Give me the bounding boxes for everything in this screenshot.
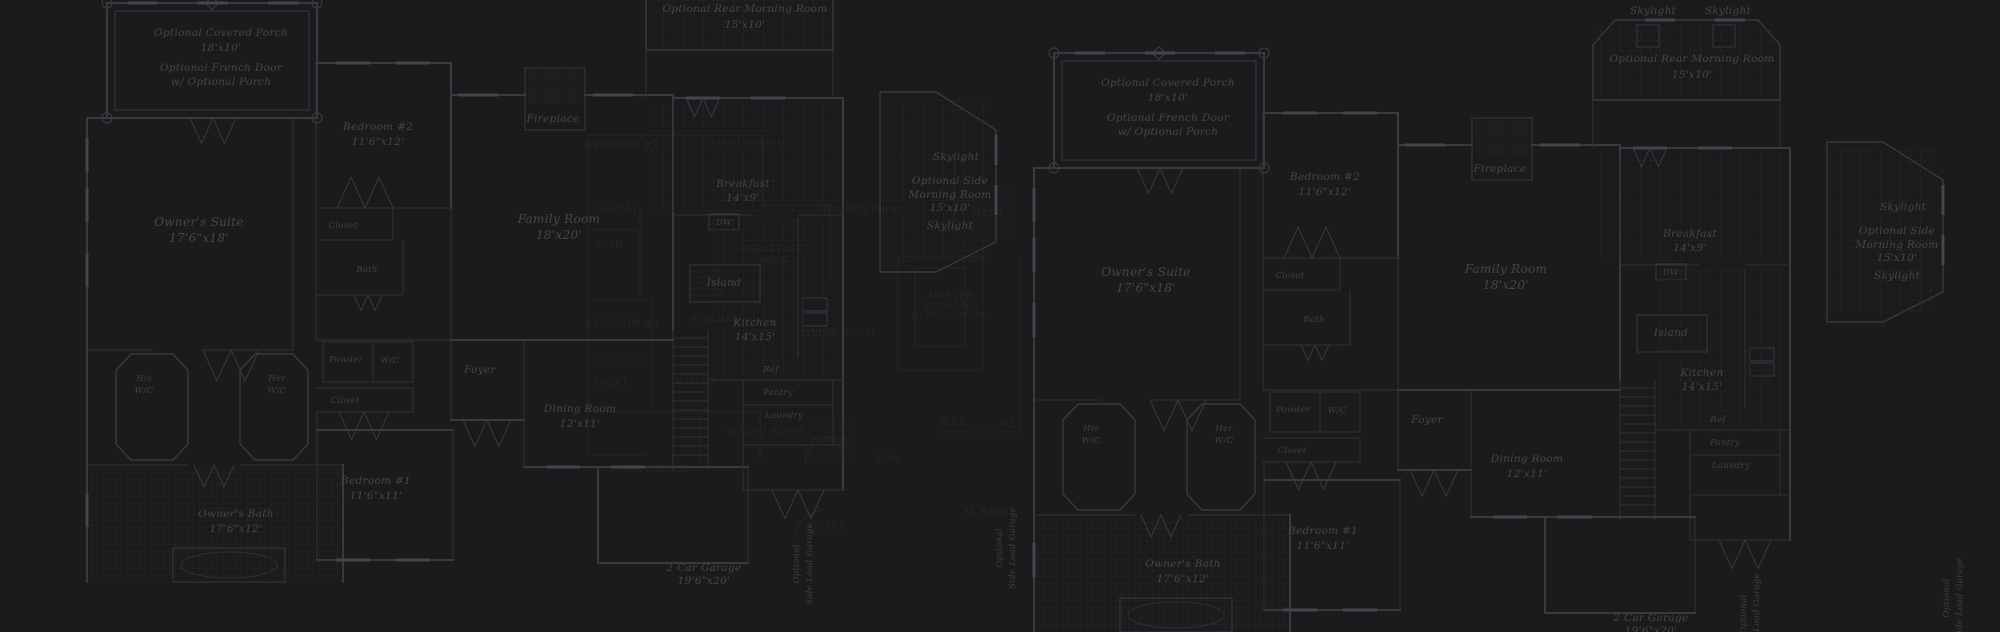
room-label: Morning Room [1854, 239, 1938, 251]
his-wc-outline [1063, 404, 1135, 510]
room-label: 2 Car Garage [1612, 612, 1688, 624]
room-label: 15'x10' [930, 202, 971, 214]
door-swing-icon [339, 412, 389, 440]
door-swing-icon [1286, 462, 1336, 490]
door-swing-icon [1137, 168, 1183, 193]
room-label: 18'x10' [201, 42, 242, 54]
room-label: Skylight [1630, 5, 1677, 17]
room-label: Skylight [1705, 5, 1752, 17]
room-label: Ref [762, 365, 780, 375]
porch-inner-outline [1062, 61, 1256, 160]
room-label: Optional Covered Porch [154, 27, 288, 39]
room-label: Bedroom #1 [1287, 525, 1358, 537]
room-label: DW [715, 218, 733, 228]
room-label: W/C [1214, 436, 1233, 446]
bg-room-label: W/ OPTIONAL BED [912, 311, 990, 319]
bg-room-label: DINING ROOM [726, 427, 803, 437]
room-label: Optional French Door [160, 62, 283, 74]
bg-room-label: DEN [876, 455, 899, 465]
room-label: 18'x20' [536, 228, 582, 242]
room-label: Her [1214, 424, 1233, 434]
room-label: Bedroom #1 [340, 475, 411, 487]
door-swing-icon [1150, 400, 1206, 431]
bg-room-label: BEDROOM #2 [585, 141, 658, 151]
porch-outline [1054, 53, 1264, 168]
room-label: Foyer [463, 364, 496, 376]
room-label: 12'x11' [560, 418, 601, 430]
fireplace-hatch [527, 70, 583, 104]
room-label-vertical: Side Load Garage [1955, 557, 1965, 632]
room-label: His [1082, 424, 1099, 434]
room-label: 17'6"x12' [1157, 573, 1210, 585]
room-label: Closet [331, 396, 360, 406]
kitchen-floor [711, 218, 841, 376]
room-label: Morning Room [907, 189, 991, 201]
foreground-floor-plans: SkylightSkylightOptional Rear Morning Ro… [87, 0, 1965, 632]
porch-inner-outline [115, 11, 309, 110]
bg-room-label: MASTER [929, 292, 974, 302]
room-label: Optional Side [1859, 225, 1935, 237]
room-label: 14'x9' [1673, 242, 1707, 254]
room-label: Skylight [927, 220, 974, 232]
room-label: 11'6"x11' [1297, 540, 1350, 552]
room-label-vertical: Side Load Garage [1008, 507, 1018, 589]
room-label: Optional Side [912, 175, 988, 187]
room-label: 18'x20' [1483, 278, 1529, 292]
room-label: Bath [1302, 315, 1324, 325]
room-label: Foyer [1410, 414, 1443, 426]
room-label: 12'x11' [1507, 468, 1548, 480]
room-label: Fireplace [1472, 163, 1526, 175]
room-label: Owner's Suite [154, 215, 244, 229]
room-label: Skylight [1880, 201, 1927, 213]
room-label: His [135, 374, 152, 384]
room-label: Skylight [1874, 270, 1921, 282]
door-swing-icon [337, 177, 393, 208]
door-swing-icon [1284, 227, 1340, 258]
room-label: Breakfast [1662, 228, 1718, 240]
room-label: Laundry [1711, 461, 1750, 471]
room-label-vertical: Side Load Garage [805, 523, 815, 605]
room-label: Bedroom #2 [342, 121, 413, 133]
bg-room-label: BATH [595, 240, 624, 250]
door-swing-icon [354, 295, 382, 310]
room-label: 17'6"x12' [210, 523, 263, 535]
room-label: 15'x10' [1672, 69, 1713, 81]
room-label: Bedroom #2 [1289, 171, 1360, 183]
room-label: Optional Covered Porch [1101, 77, 1235, 89]
room-label: 18'x10' [1148, 92, 1189, 104]
room-label: W/C [134, 386, 153, 396]
room-label-vertical: Optional [1739, 594, 1749, 632]
room-label: Family Room [1464, 262, 1547, 276]
porch-post-diamond-icon [206, 0, 219, 9]
room-label: 11'6"x12' [352, 136, 405, 148]
room-label-vertical: Side Load Garage [1752, 573, 1762, 632]
room-label: Optional Rear Morning Room [662, 3, 827, 15]
room-label: Optional Rear Morning Room [1609, 53, 1774, 65]
room-label: 19'6"x20' [678, 575, 731, 587]
room-label: Family Room [517, 212, 600, 226]
room-label: 17'6"x18' [1116, 281, 1176, 295]
door-swing-icon [190, 118, 236, 143]
room-label: W/C [380, 356, 399, 366]
room-label: 11'6"x11' [350, 490, 403, 502]
room-label: Bath [355, 265, 377, 275]
room-label: Breakfast [715, 178, 771, 190]
kitchen-floor [1658, 268, 1788, 426]
room-label: Powder [328, 355, 364, 365]
room-label: 14'x15' [1682, 381, 1723, 393]
room-label: 2 Car Garage [665, 562, 741, 574]
room-label-vertical: Optional [995, 528, 1005, 567]
his-wc-outline [116, 354, 188, 460]
room-label: Dining Room [1490, 453, 1564, 465]
room-label: Powder [1275, 405, 1311, 415]
door-swing-icon [1719, 540, 1771, 569]
room-label: Laundry [764, 411, 803, 421]
floor-plan-left: SkylightSkylightOptional Rear Morning Ro… [87, 0, 1018, 605]
bg-room-label: BEDROOM #3 [585, 319, 658, 329]
door-swing-icon [772, 490, 824, 519]
room-label: Closet [1278, 446, 1307, 456]
room-label: 14'x15' [735, 331, 776, 343]
bg-room-label: UTILITY [676, 377, 719, 387]
room-label: Owner's Bath [1145, 558, 1221, 570]
room-label: 19'6"x20' [1625, 625, 1678, 632]
porch-outline [107, 3, 317, 118]
room-label: Ref [1709, 415, 1727, 425]
bg-room-label: CLOSET [596, 203, 639, 213]
door-swing-icon [1301, 345, 1329, 360]
room-label-vertical: Optional [792, 544, 802, 583]
door-swing-icon [1410, 470, 1458, 496]
room-label: Pantry [1709, 438, 1740, 448]
room-label: Closet [329, 221, 358, 231]
room-label-vertical: Optional [1942, 578, 1952, 617]
room-label: Owner's Bath [198, 508, 274, 520]
room-label: Kitchen [1679, 367, 1723, 379]
floor-plan-blueprint: BEDROOM #2FAMILY ROOMCLOSETBATHBREAKFAST… [0, 0, 2000, 632]
room-label: Kitchen [732, 317, 776, 329]
room-label: Closet [1276, 271, 1305, 281]
room-label: 15'x10' [725, 19, 766, 31]
room-label: Fireplace [525, 113, 579, 125]
fireplace-hatch [1474, 120, 1530, 154]
room-label: 11'6"x12' [1299, 186, 1352, 198]
floor-plan-right: SkylightSkylightOptional Rear Morning Ro… [1034, 5, 1965, 632]
room-label: Skylight [933, 151, 980, 163]
room-label: Optional French Door [1107, 112, 1230, 124]
room-label: W/C [1081, 436, 1100, 446]
door-swing-icon [203, 350, 259, 381]
bg-room-label: CLOSET [586, 379, 629, 389]
room-label: Island [706, 277, 741, 289]
room-label: w/ Optional Porch [171, 76, 272, 88]
room-label: DW [1662, 268, 1680, 278]
room-label: 15'x10' [1877, 252, 1918, 264]
room-label: 14'x9' [726, 192, 760, 204]
bg-room-label: W.I.C. [940, 419, 970, 429]
bg-room-label: M. BATH [964, 508, 1010, 518]
room-label: 17'6"x18' [169, 231, 229, 245]
room-label: Island [1653, 327, 1688, 339]
room-label: Owner's Suite [1101, 265, 1191, 279]
bg-room-label: W.I.C. [999, 420, 1029, 430]
room-label: Pantry [762, 388, 793, 398]
room-label: Her [267, 374, 286, 384]
room-label: W/C [267, 386, 286, 396]
room-label: w/ Optional Porch [1118, 126, 1219, 138]
room-label: W/C [1327, 406, 1346, 416]
door-swing-icon [463, 420, 511, 446]
room-label: Dining Room [543, 403, 617, 415]
blueprint-hero-background: BEDROOM #2FAMILY ROOMCLOSETBATHBREAKFAST… [0, 0, 2000, 632]
